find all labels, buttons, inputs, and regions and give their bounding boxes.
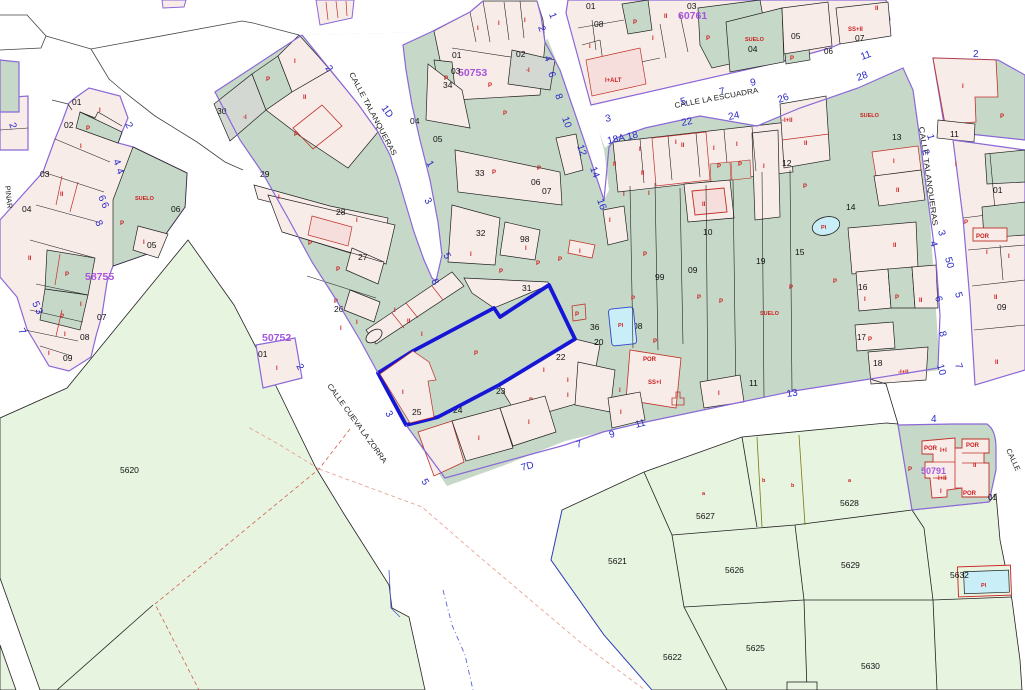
svg-text:PI: PI bbox=[618, 323, 624, 329]
svg-text:06: 06 bbox=[531, 177, 541, 187]
svg-text:18: 18 bbox=[873, 358, 883, 368]
svg-text:05: 05 bbox=[791, 31, 801, 41]
svg-text:P: P bbox=[833, 279, 837, 285]
svg-text:06: 06 bbox=[824, 47, 833, 56]
svg-text:I+ALT: I+ALT bbox=[605, 78, 622, 84]
svg-text:08: 08 bbox=[594, 19, 604, 29]
svg-text:5620: 5620 bbox=[120, 465, 139, 475]
svg-text:POR: POR bbox=[976, 234, 990, 240]
svg-text:27: 27 bbox=[358, 252, 368, 262]
svg-text:36: 36 bbox=[590, 322, 600, 332]
svg-text:P: P bbox=[631, 296, 635, 302]
svg-text:P: P bbox=[499, 269, 503, 275]
svg-text:01: 01 bbox=[72, 97, 82, 107]
svg-text:4: 4 bbox=[931, 414, 937, 425]
svg-text:SUELO: SUELO bbox=[135, 196, 155, 202]
svg-text:P: P bbox=[503, 111, 507, 117]
svg-text:60761: 60761 bbox=[678, 10, 707, 22]
svg-text:II: II bbox=[995, 360, 999, 366]
svg-text:5629: 5629 bbox=[841, 560, 860, 570]
svg-text:5621: 5621 bbox=[608, 556, 627, 566]
svg-text:P: P bbox=[643, 252, 647, 258]
svg-text:01: 01 bbox=[586, 1, 596, 11]
svg-text:08: 08 bbox=[80, 332, 90, 342]
svg-text:-I+II: -I+II bbox=[936, 476, 947, 482]
svg-text:II: II bbox=[875, 6, 879, 12]
svg-text:19: 19 bbox=[756, 256, 766, 266]
svg-text:P: P bbox=[719, 299, 723, 305]
svg-text:05: 05 bbox=[433, 134, 443, 144]
svg-text:P: P bbox=[86, 126, 90, 132]
svg-text:P: P bbox=[558, 257, 562, 263]
svg-text:02: 02 bbox=[64, 120, 74, 130]
svg-text:22: 22 bbox=[556, 352, 566, 362]
svg-text:01: 01 bbox=[993, 185, 1003, 195]
svg-text:98: 98 bbox=[520, 234, 530, 244]
svg-text:50753: 50753 bbox=[458, 67, 487, 79]
svg-text:I+I: I+I bbox=[940, 448, 947, 454]
svg-text:II: II bbox=[664, 14, 668, 20]
svg-text:-I: -I bbox=[243, 115, 247, 121]
svg-text:P: P bbox=[537, 166, 541, 172]
svg-text:03: 03 bbox=[40, 169, 50, 179]
svg-text:P: P bbox=[653, 339, 657, 345]
svg-text:-I+II: -I+II bbox=[782, 118, 793, 124]
svg-text:PI: PI bbox=[981, 583, 987, 589]
svg-text:II: II bbox=[28, 256, 32, 262]
svg-text:P: P bbox=[697, 295, 701, 301]
svg-text:II: II bbox=[407, 319, 411, 325]
svg-text:II: II bbox=[613, 162, 617, 168]
svg-text:10: 10 bbox=[703, 227, 713, 237]
svg-text:01: 01 bbox=[452, 50, 462, 60]
svg-text:POR: POR bbox=[643, 357, 657, 363]
svg-text:II: II bbox=[60, 192, 64, 198]
svg-text:12: 12 bbox=[782, 158, 792, 168]
svg-text:P: P bbox=[738, 162, 742, 168]
svg-text:II: II bbox=[919, 298, 923, 304]
svg-text:06: 06 bbox=[171, 204, 181, 214]
svg-text:09: 09 bbox=[688, 265, 698, 275]
svg-text:50791: 50791 bbox=[921, 466, 946, 476]
svg-text:33: 33 bbox=[475, 168, 485, 178]
svg-text:20: 20 bbox=[594, 337, 604, 347]
svg-text:P: P bbox=[895, 295, 899, 301]
svg-text:II: II bbox=[973, 463, 977, 469]
svg-text:II: II bbox=[994, 295, 998, 301]
svg-text:II: II bbox=[303, 95, 307, 101]
svg-text:SUELO: SUELO bbox=[745, 37, 765, 43]
svg-text:P: P bbox=[488, 83, 492, 89]
svg-text:13: 13 bbox=[892, 132, 902, 142]
svg-text:31: 31 bbox=[522, 283, 532, 293]
svg-text:5630: 5630 bbox=[861, 661, 880, 671]
svg-text:P: P bbox=[294, 132, 298, 138]
svg-text:16: 16 bbox=[858, 282, 868, 292]
svg-text:P: P bbox=[964, 220, 968, 226]
svg-text:17: 17 bbox=[857, 333, 866, 342]
svg-text:SUELO: SUELO bbox=[860, 113, 880, 119]
svg-text:11: 11 bbox=[749, 378, 758, 388]
svg-text:09: 09 bbox=[997, 302, 1007, 312]
svg-text:POR: POR bbox=[966, 443, 980, 449]
svg-text:SS+I: SS+I bbox=[648, 380, 662, 386]
svg-text:50752: 50752 bbox=[262, 332, 291, 344]
svg-text:P: P bbox=[706, 36, 710, 42]
svg-text:P: P bbox=[266, 77, 270, 83]
svg-text:P: P bbox=[65, 272, 69, 278]
svg-text:P: P bbox=[789, 285, 793, 291]
svg-text:01: 01 bbox=[258, 349, 268, 359]
svg-text:07: 07 bbox=[542, 186, 552, 196]
svg-text:SUELO: SUELO bbox=[760, 311, 780, 317]
svg-text:25: 25 bbox=[412, 407, 422, 417]
svg-text:5626: 5626 bbox=[725, 565, 744, 575]
svg-text:POR: POR bbox=[924, 446, 938, 452]
svg-text:05: 05 bbox=[147, 240, 157, 250]
svg-text:P: P bbox=[717, 164, 721, 170]
svg-text:32: 32 bbox=[476, 228, 486, 238]
svg-text:5632: 5632 bbox=[950, 570, 969, 580]
svg-text:II: II bbox=[681, 143, 685, 149]
svg-text:II: II bbox=[702, 202, 706, 208]
svg-text:02: 02 bbox=[516, 49, 526, 59]
svg-text:5625: 5625 bbox=[746, 643, 765, 653]
svg-text:P: P bbox=[790, 56, 794, 62]
svg-text:II: II bbox=[896, 188, 900, 194]
svg-text:P: P bbox=[336, 267, 340, 273]
svg-text:07: 07 bbox=[855, 33, 865, 43]
svg-text:P: P bbox=[492, 170, 496, 176]
svg-text:14: 14 bbox=[846, 202, 856, 212]
svg-text:II: II bbox=[893, 243, 897, 249]
svg-text:58755: 58755 bbox=[85, 271, 114, 283]
svg-text:P: P bbox=[444, 76, 448, 82]
svg-text:II: II bbox=[804, 141, 808, 147]
svg-text:11: 11 bbox=[950, 129, 959, 139]
svg-text:P: P bbox=[120, 221, 124, 227]
svg-text:28: 28 bbox=[336, 207, 346, 217]
svg-text:PI: PI bbox=[821, 225, 827, 231]
svg-text:2: 2 bbox=[973, 49, 979, 60]
svg-text:15: 15 bbox=[795, 247, 805, 257]
svg-text:99: 99 bbox=[655, 272, 665, 282]
svg-text:P: P bbox=[803, 184, 807, 190]
svg-text:P: P bbox=[536, 261, 540, 267]
svg-text:13: 13 bbox=[786, 387, 799, 400]
svg-text:01: 01 bbox=[988, 493, 997, 502]
svg-text:5627: 5627 bbox=[696, 511, 715, 521]
svg-text:07: 07 bbox=[97, 312, 107, 322]
svg-text:POR: POR bbox=[963, 491, 977, 497]
svg-text:04: 04 bbox=[748, 44, 758, 54]
svg-text:P: P bbox=[868, 337, 872, 343]
svg-text:04: 04 bbox=[22, 204, 32, 214]
svg-text:II: II bbox=[641, 171, 645, 177]
svg-text:P: P bbox=[308, 241, 312, 247]
svg-text:5622: 5622 bbox=[663, 652, 682, 662]
svg-text:P: P bbox=[908, 467, 912, 473]
svg-text:P: P bbox=[575, 312, 579, 318]
svg-text:03: 03 bbox=[451, 66, 461, 76]
svg-text:P: P bbox=[474, 351, 478, 357]
svg-text:-I: -I bbox=[526, 68, 530, 74]
svg-text:5628: 5628 bbox=[840, 498, 859, 508]
svg-text:P: P bbox=[633, 20, 637, 26]
svg-text:P: P bbox=[1000, 114, 1004, 120]
svg-text:P: P bbox=[60, 314, 64, 320]
svg-text:09: 09 bbox=[63, 353, 73, 363]
